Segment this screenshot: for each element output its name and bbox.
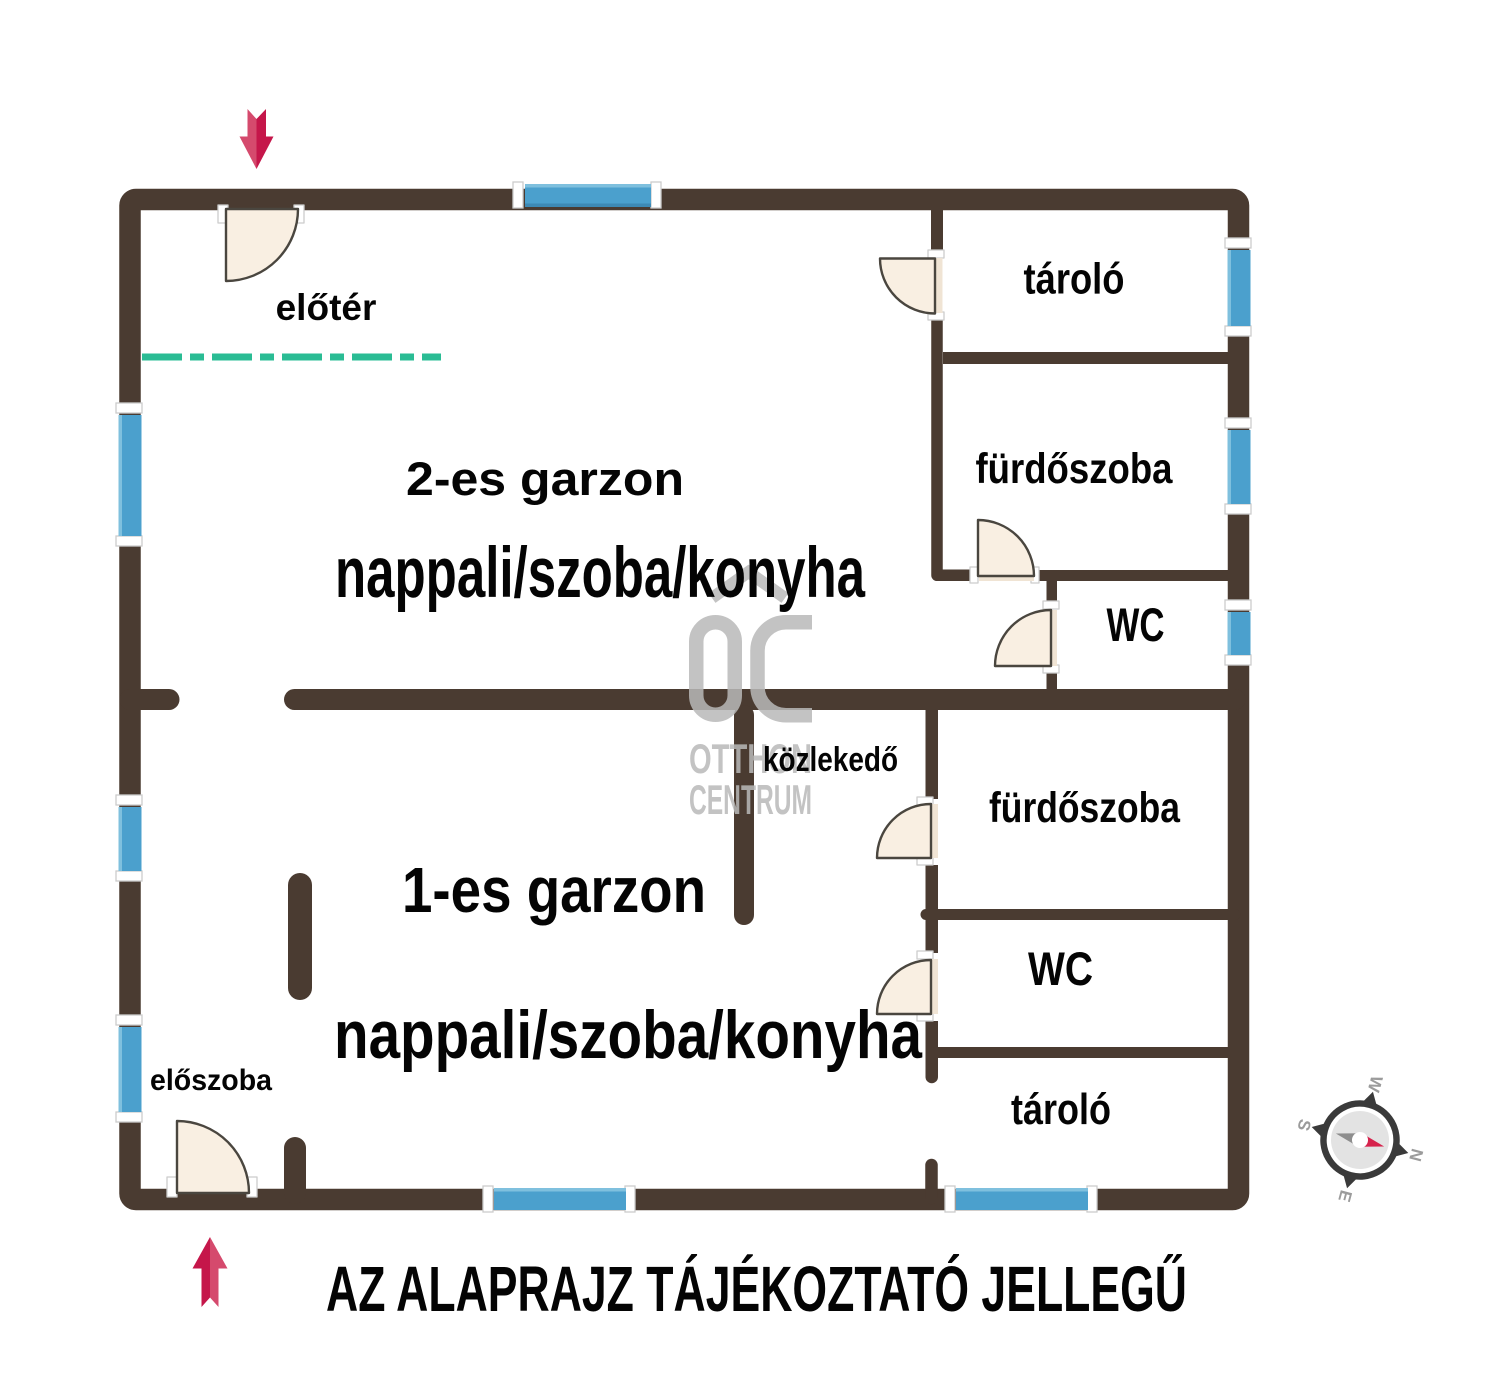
svg-text:2-es garzon: 2-es garzon [406,452,684,505]
svg-text:előtér: előtér [276,287,377,328]
svg-text:CENTRUM: CENTRUM [689,776,812,823]
svg-text:AZ ALAPRAJZ TÁJÉKOZTATÓ JELLEG: AZ ALAPRAJZ TÁJÉKOZTATÓ JELLEGŰ [326,1253,1187,1325]
svg-text:nappali/szoba/konyha: nappali/szoba/konyha [334,997,923,1073]
svg-text:WC: WC [1028,942,1093,995]
svg-text:fürdőszoba: fürdőszoba [989,784,1181,832]
svg-text:1-es garzon: 1-es garzon [402,854,706,926]
svg-text:tároló: tároló [1011,1085,1111,1134]
svg-text:előszoba: előszoba [150,1064,272,1097]
svg-text:tároló: tároló [1024,255,1125,304]
svg-text:közlekedő: közlekedő [763,741,898,779]
svg-text:fürdőszoba: fürdőszoba [976,445,1174,493]
svg-text:nappali/szoba/konyha: nappali/szoba/konyha [335,534,865,613]
svg-text:WC: WC [1107,598,1165,651]
